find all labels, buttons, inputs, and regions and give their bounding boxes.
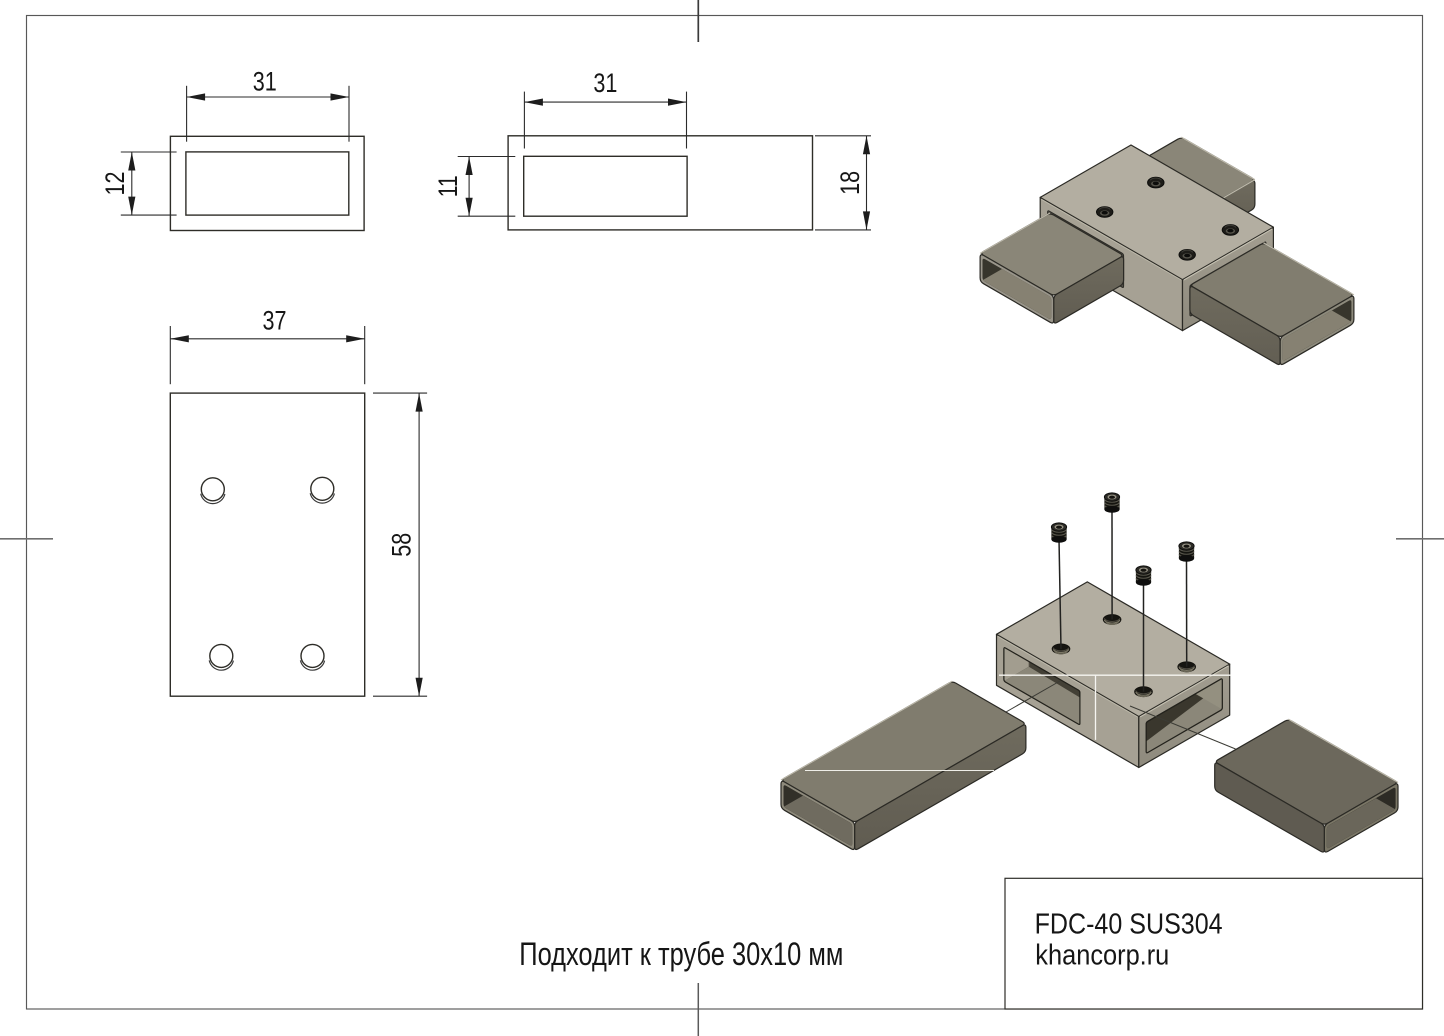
svg-text:31: 31 [253, 67, 277, 97]
svg-text:11: 11 [433, 175, 463, 197]
svg-text:khancorp.ru: khancorp.ru [1035, 940, 1169, 972]
svg-text:31: 31 [593, 68, 617, 98]
svg-text:Подходит к трубе 30х10 мм: Подходит к трубе 30х10 мм [519, 936, 843, 972]
svg-text:37: 37 [263, 306, 287, 336]
svg-text:58: 58 [387, 533, 417, 557]
svg-text:12: 12 [100, 172, 130, 196]
svg-text:FDC-40 SUS304: FDC-40 SUS304 [1035, 909, 1223, 941]
svg-text:18: 18 [835, 171, 865, 195]
